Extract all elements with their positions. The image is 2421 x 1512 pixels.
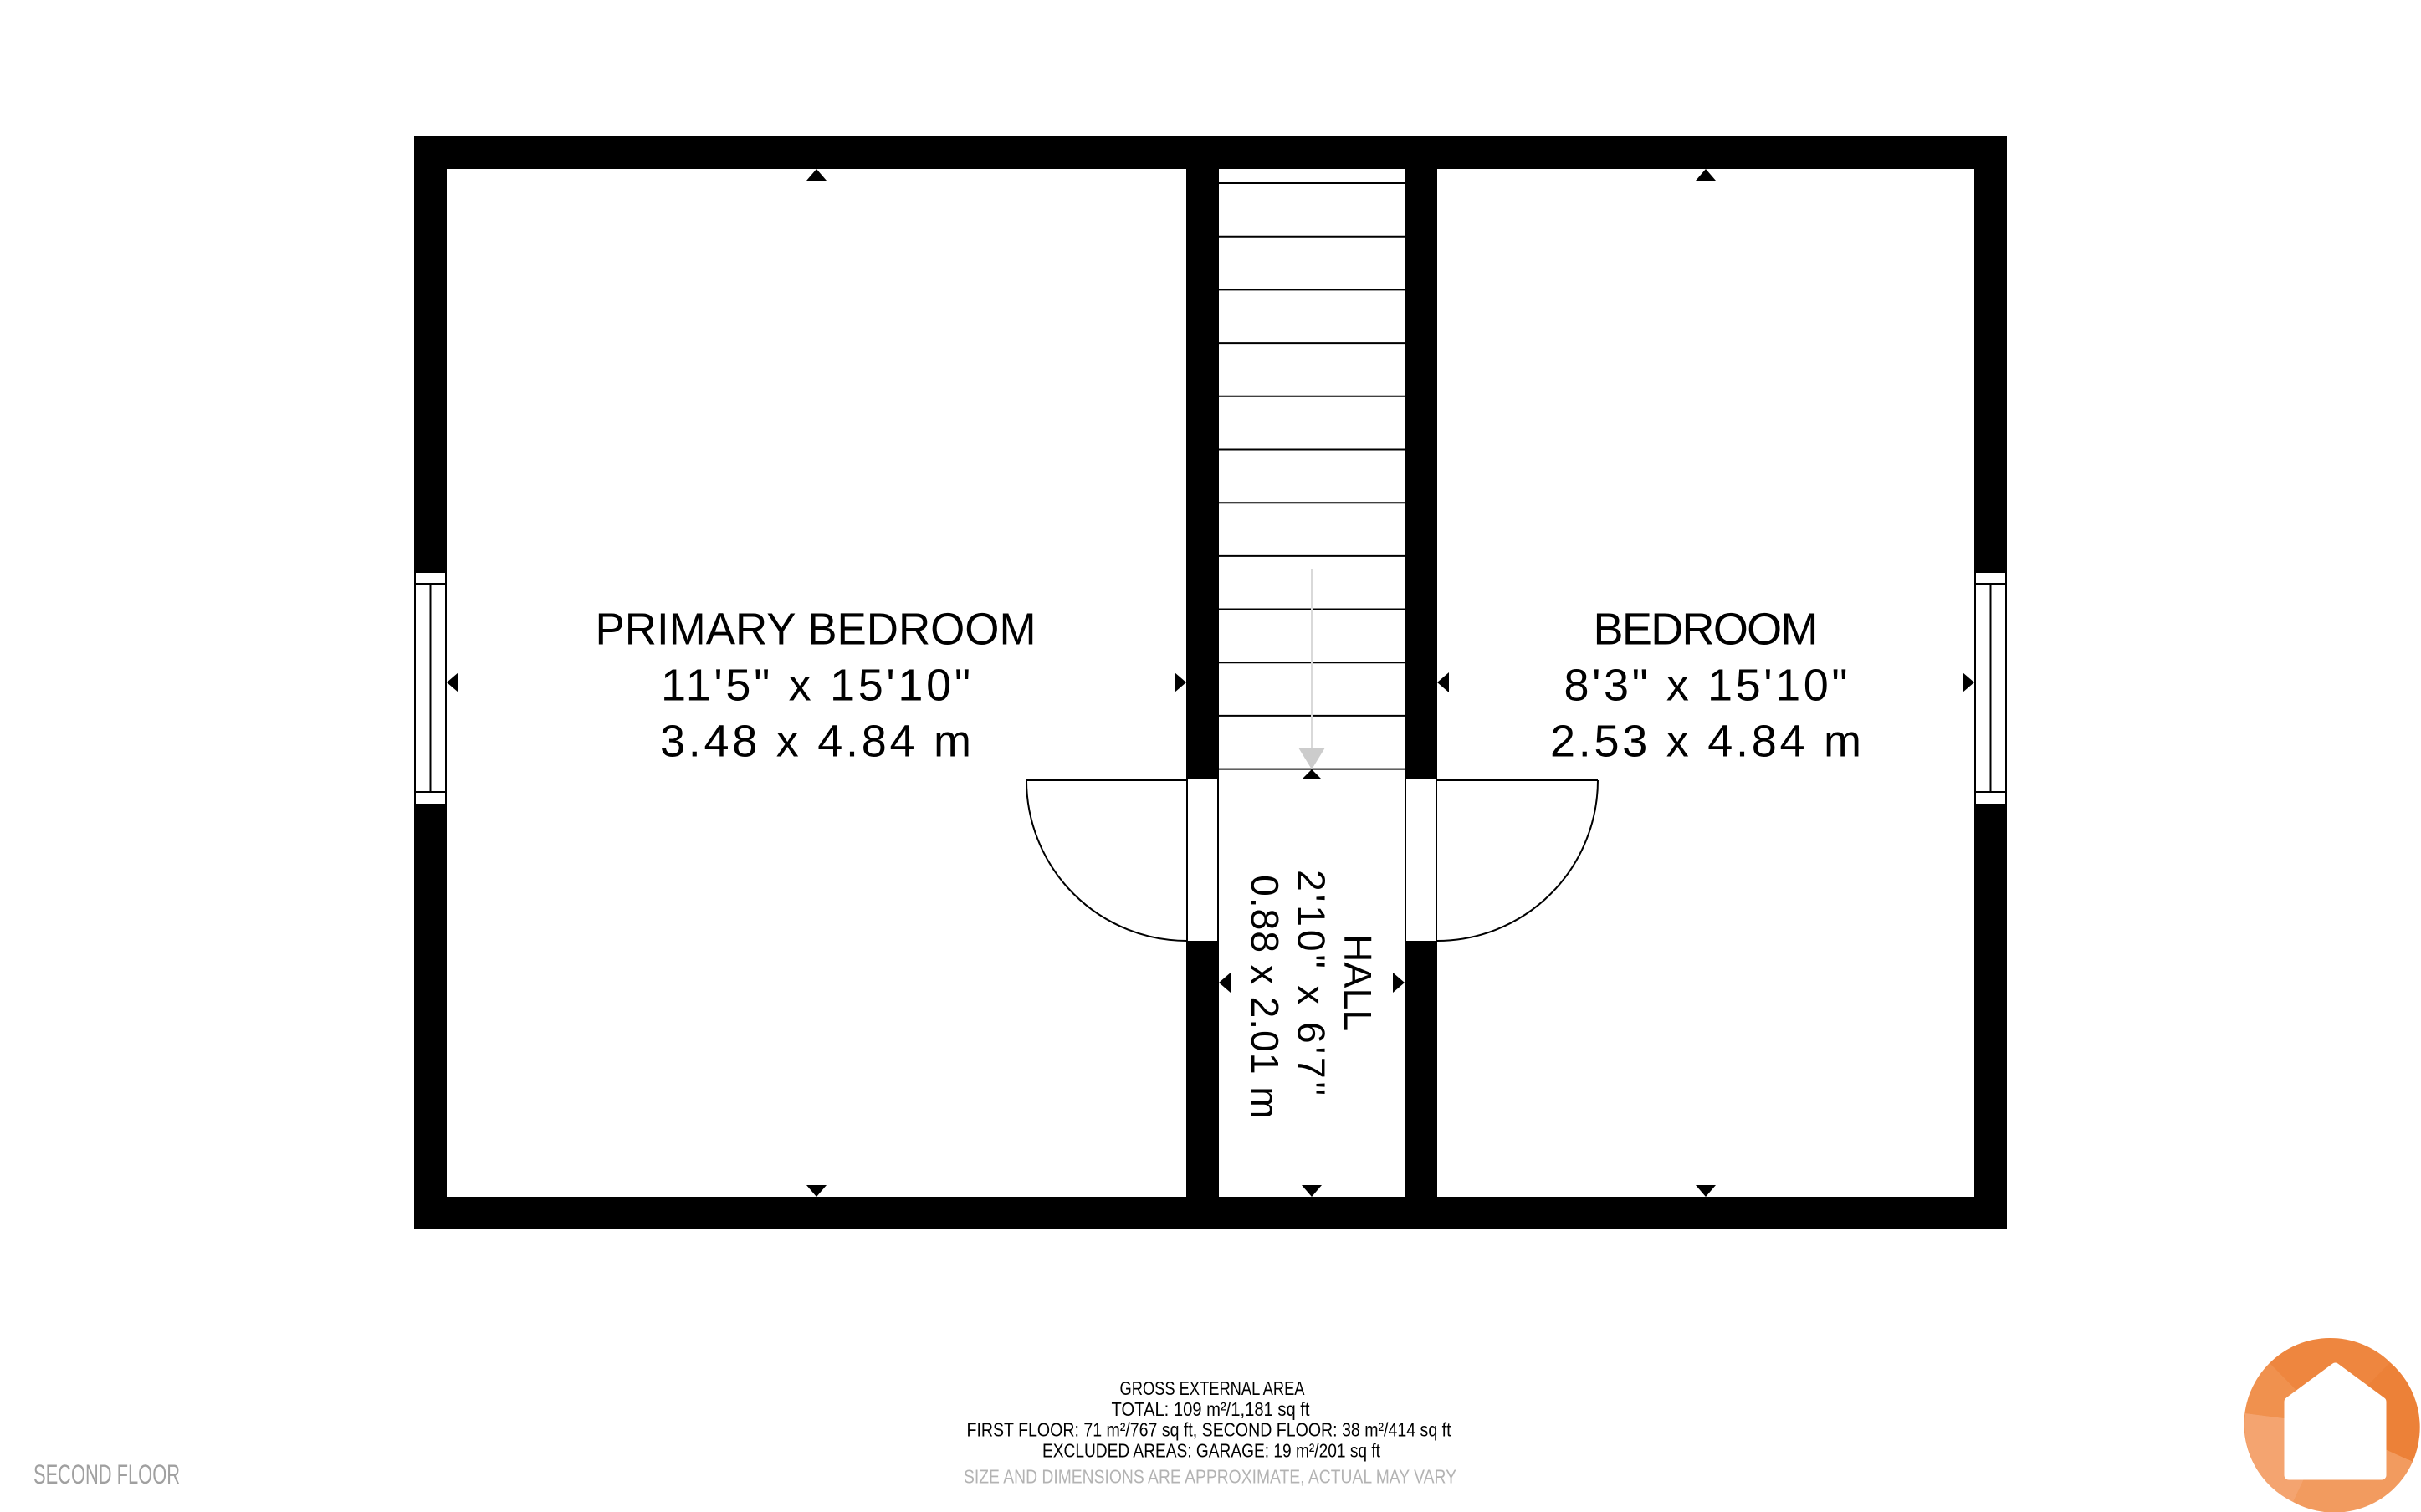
svg-text:8'3" x 15'10": 8'3" x 15'10" (1564, 661, 1848, 711)
svg-text:HALL: HALL (1336, 934, 1379, 1031)
svg-text:SECOND FLOOR: SECOND FLOOR (33, 1459, 180, 1489)
svg-text:0.88 x 2.01 m: 0.88 x 2.01 m (1243, 875, 1287, 1119)
svg-text:TOTAL: 109 m²/1,181 sq ft: TOTAL: 109 m²/1,181 sq ft (1112, 1398, 1311, 1420)
svg-text:2'10" x 6'7": 2'10" x 6'7" (1290, 870, 1333, 1096)
svg-text:BEDROOM: BEDROOM (1594, 605, 1819, 655)
svg-text:FIRST FLOOR: 71 m²/767 sq ft,: FIRST FLOOR: 71 m²/767 sq ft, SECOND FLO… (967, 1419, 1452, 1441)
svg-text:EXCLUDED AREAS: GARAGE: 19 m²/: EXCLUDED AREAS: GARAGE: 19 m²/201 sq ft (1042, 1439, 1381, 1461)
svg-text:SIZE AND DIMENSIONS ARE APPROX: SIZE AND DIMENSIONS ARE APPROXIMATE, ACT… (964, 1466, 1456, 1488)
svg-text:GROSS EXTERNAL AREA: GROSS EXTERNAL AREA (1120, 1377, 1306, 1399)
svg-text:3.48 x 4.84 m: 3.48 x 4.84 m (660, 717, 971, 767)
svg-text:PRIMARY BEDROOM: PRIMARY BEDROOM (596, 605, 1036, 655)
svg-text:2.53 x 4.84 m: 2.53 x 4.84 m (1550, 717, 1861, 767)
svg-text:11'5" x 15'10": 11'5" x 15'10" (661, 661, 970, 711)
